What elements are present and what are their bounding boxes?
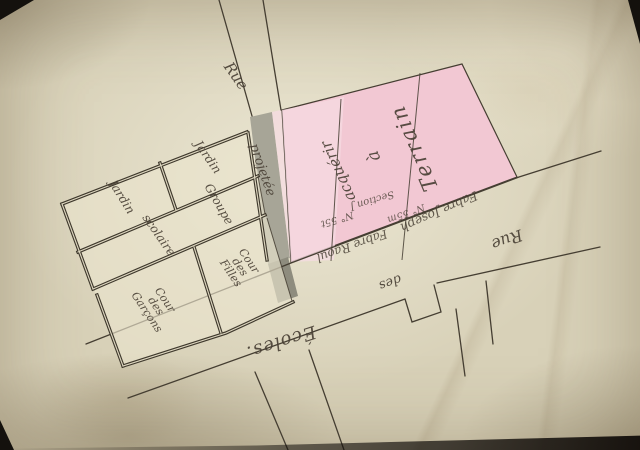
photographed-plan: Rue projetée Terrain à acquérir Section … xyxy=(0,0,640,450)
top-street-lines xyxy=(219,0,281,116)
terrain-parcel xyxy=(282,64,517,262)
